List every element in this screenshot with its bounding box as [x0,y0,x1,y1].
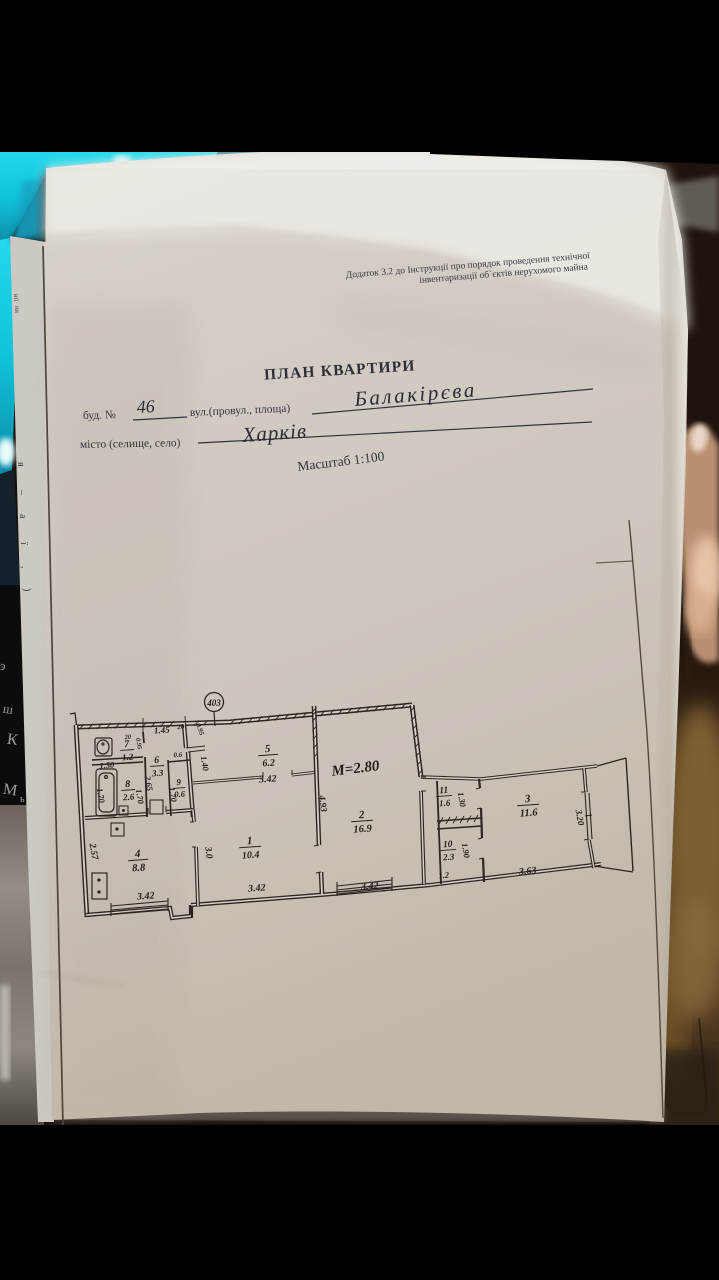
svg-text:10: 10 [443,840,453,851]
svg-text:3.63: 3.63 [517,865,537,878]
svg-text:11.6: 11.6 [519,807,538,819]
svg-text:а: а [17,514,28,519]
svg-text:,: , [19,566,30,569]
svg-text:403: 403 [206,698,221,708]
svg-text:ня: ня [13,306,21,314]
svg-text:2.3: 2.3 [442,852,455,863]
svg-text:Харків: Харків [241,419,308,448]
svg-text:20: 20 [176,723,185,732]
svg-text:3.42: 3.42 [258,773,277,785]
svg-text:місто (селище, село): місто (селище, село) [80,437,181,451]
svg-text:2.6: 2.6 [122,792,135,803]
svg-text:46: 46 [136,396,155,417]
svg-text:я: я [15,462,26,467]
svg-text:6: 6 [154,755,160,766]
svg-text:юї: юї [12,294,20,301]
svg-text:0.6: 0.6 [174,789,186,800]
svg-text:10.4: 10.4 [242,849,260,861]
svg-text:1: 1 [247,835,253,847]
svg-text:ш: ш [2,701,14,717]
svg-text:ї: ї [18,542,29,545]
svg-text:3.42: 3.42 [247,882,266,894]
svg-text:1.6: 1.6 [439,798,451,809]
svg-text:): ) [21,588,32,591]
svg-text:1.2: 1.2 [438,870,450,881]
svg-text:буд. №: буд. № [83,409,116,422]
svg-text:1.50: 1.50 [99,759,115,770]
svg-text:6.2: 6.2 [262,758,275,770]
svg-text:1.2: 1.2 [122,752,134,763]
svg-text:3.42: 3.42 [136,890,155,902]
svg-text:3.0: 3.0 [202,845,214,859]
svg-text:16.9: 16.9 [353,823,373,835]
svg-text:–: – [16,489,27,496]
svg-text:0.6: 0.6 [173,751,183,760]
svg-text:8: 8 [125,779,131,790]
svg-text:11: 11 [439,786,449,797]
svg-text:3.42: 3.42 [360,880,379,892]
svg-text:1.45: 1.45 [154,724,171,735]
svg-text:ь: ь [20,794,25,805]
svg-text:М: М [2,781,18,800]
svg-text:8.8: 8.8 [132,862,147,874]
